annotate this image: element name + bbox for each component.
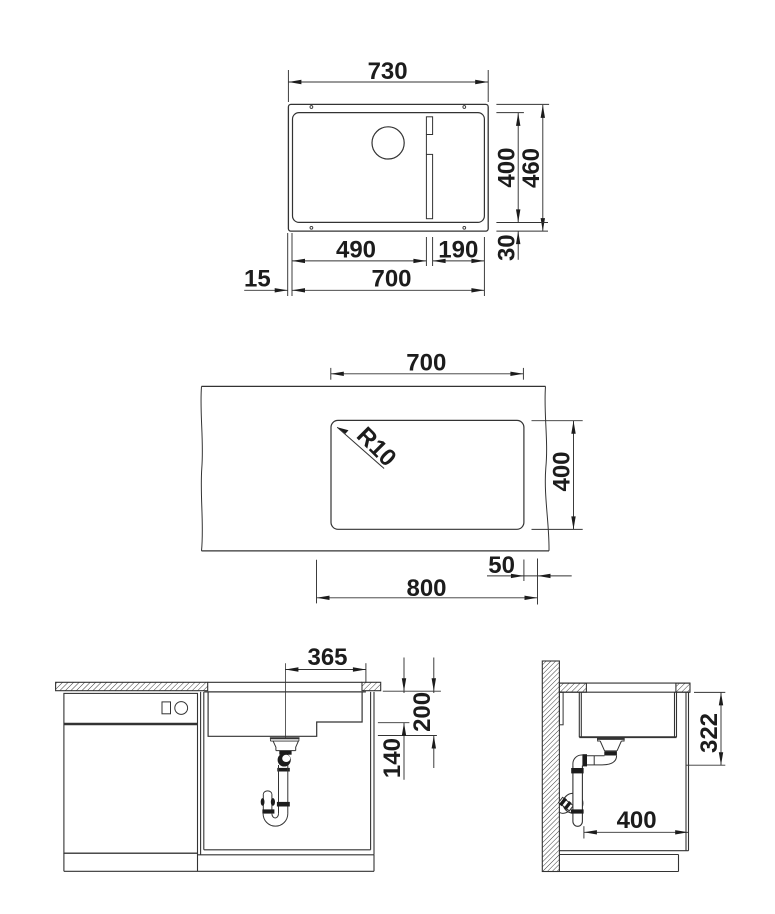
svg-text:190: 190 bbox=[438, 237, 478, 264]
svg-text:400: 400 bbox=[493, 148, 520, 188]
svg-text:400: 400 bbox=[549, 451, 576, 491]
svg-text:30: 30 bbox=[493, 234, 520, 261]
svg-text:50: 50 bbox=[488, 552, 515, 579]
svg-text:700: 700 bbox=[406, 350, 446, 377]
svg-text:800: 800 bbox=[406, 575, 446, 602]
svg-text:322: 322 bbox=[696, 713, 723, 753]
svg-text:490: 490 bbox=[336, 237, 376, 264]
svg-text:400: 400 bbox=[617, 807, 657, 834]
svg-text:730: 730 bbox=[368, 58, 408, 85]
svg-text:365: 365 bbox=[307, 644, 347, 671]
svg-text:700: 700 bbox=[371, 266, 411, 293]
svg-text:15: 15 bbox=[244, 266, 271, 293]
svg-text:140: 140 bbox=[379, 738, 406, 778]
svg-text:R10: R10 bbox=[351, 422, 401, 472]
svg-text:460: 460 bbox=[518, 148, 545, 188]
svg-text:200: 200 bbox=[409, 692, 436, 732]
